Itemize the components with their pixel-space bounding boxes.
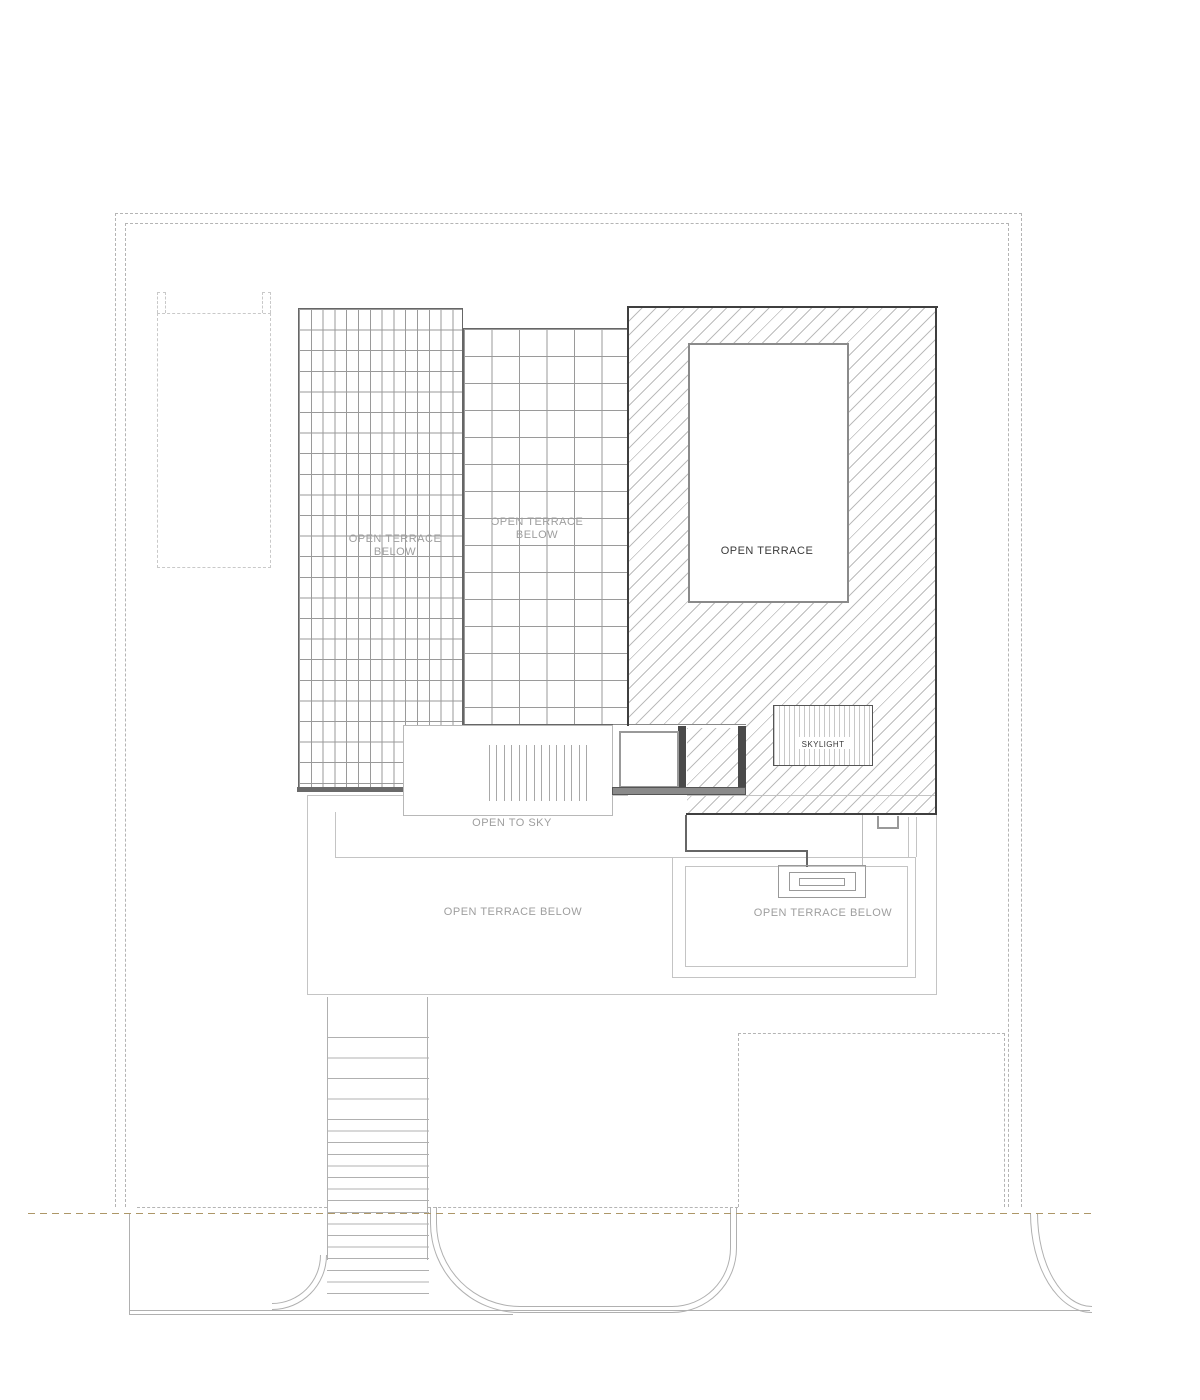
planter-tab-right [262, 292, 271, 313]
ground-line-lower [129, 1310, 1090, 1311]
label-open-terrace: OPEN TERRACE [687, 545, 847, 558]
step-detail-edge [862, 815, 863, 865]
hatch-panel-small [687, 728, 738, 787]
roof-border-bottom [686, 813, 937, 815]
label-terrace-below-right: OPEN TERRACE BELOW [703, 907, 943, 920]
planter-outline [157, 313, 271, 568]
label-terrace-left: OPEN TERRACE BELOW [315, 533, 475, 559]
site-boundary-bottom-left-segment [137, 1207, 327, 1208]
skylight-box [773, 705, 873, 766]
louver-slats [489, 745, 589, 801]
label-terrace-mid: OPEN TERRACE BELOW [457, 516, 617, 542]
parapet-edge-left-grid [297, 787, 407, 792]
driveway-curve-inner [436, 1207, 731, 1307]
step-detail-tier-3 [799, 878, 845, 886]
setback-line [28, 1213, 1092, 1214]
label-skylight: SKYLIGHT [773, 738, 873, 751]
parking-pad-dashed-outline [738, 1033, 1005, 1207]
stair-shaft-wall-left [678, 726, 686, 787]
lower-terrace-inner-edge-h [335, 857, 673, 858]
stair-treads-lower [327, 1119, 429, 1301]
hatch-notch-lower [628, 795, 687, 815]
drain-box [877, 816, 899, 829]
step-detail-wall-v1 [685, 815, 687, 852]
stair-fillet-inner [272, 1255, 321, 1304]
label-terrace-below-center: OPEN TERRACE BELOW [393, 906, 633, 919]
lower-right-terrace-edge-a [908, 817, 909, 857]
ground-line-lower-double [129, 1314, 513, 1315]
notch-top-line [613, 724, 746, 725]
roof-border-left [627, 306, 629, 726]
stairwell-box [619, 731, 679, 788]
roof-border-top [627, 306, 938, 308]
step-detail-wall-h1 [685, 850, 808, 852]
roof-border-right [935, 306, 937, 815]
lower-terrace-inner-edge-v [335, 812, 336, 857]
floor-plan-canvas: OPEN TERRACE BELOW OPEN TERRACE BELOW OP… [0, 0, 1200, 1400]
label-open-to-sky: OPEN TO SKY [432, 817, 592, 830]
ground-edge-left [129, 1213, 130, 1314]
driveway-right-curve-inner [1037, 1213, 1092, 1307]
lower-right-terrace-edge-b [916, 817, 917, 857]
stair-treads-upper [327, 1037, 429, 1120]
stair-shaft-wall-right [738, 726, 746, 787]
roof-opening [688, 343, 849, 603]
parapet-bar [612, 787, 746, 795]
planter-tab-left [157, 292, 166, 313]
